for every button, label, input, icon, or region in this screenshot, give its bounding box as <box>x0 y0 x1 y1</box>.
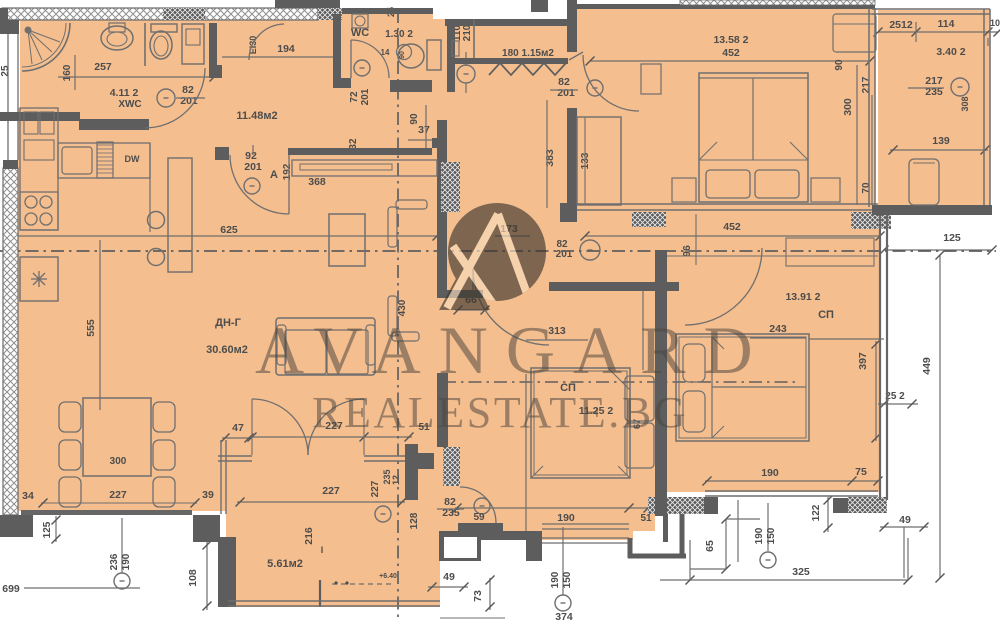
svg-text:374: 374 <box>555 611 573 623</box>
svg-text:90: 90 <box>409 113 420 125</box>
svg-text:WC: WC <box>351 27 369 39</box>
svg-text:625: 625 <box>220 224 238 236</box>
svg-text:ХWC: ХWC <box>118 99 141 110</box>
svg-text:452: 452 <box>722 47 740 59</box>
svg-text:139: 139 <box>932 135 950 147</box>
svg-text:300: 300 <box>842 98 854 116</box>
svg-text:AVANGARD: AVANGARD <box>255 312 771 388</box>
svg-text:37: 37 <box>418 124 430 136</box>
svg-text:150: 150 <box>562 571 573 588</box>
svg-text:3.40 2: 3.40 2 <box>936 46 965 58</box>
svg-text:122: 122 <box>811 504 822 521</box>
svg-text:128: 128 <box>409 512 420 529</box>
svg-text:190: 190 <box>761 467 779 479</box>
svg-text:51: 51 <box>640 513 652 524</box>
svg-text:114: 114 <box>938 18 955 30</box>
svg-text:108: 108 <box>187 569 199 587</box>
svg-text:452: 452 <box>723 221 741 233</box>
svg-text:59: 59 <box>473 512 485 523</box>
svg-text:+6.40: +6.40 <box>379 573 397 580</box>
svg-text:227: 227 <box>370 480 381 497</box>
svg-text:449: 449 <box>921 357 933 375</box>
svg-text:190: 190 <box>557 512 575 524</box>
svg-text:397: 397 <box>857 352 869 370</box>
svg-text:13.58 2: 13.58 2 <box>713 34 748 46</box>
svg-text:39: 39 <box>202 489 214 501</box>
svg-text:308: 308 <box>960 96 970 111</box>
svg-text:4.11 2: 4.11 2 <box>110 87 139 99</box>
svg-text:194: 194 <box>277 43 295 55</box>
svg-text:368: 368 <box>308 176 326 188</box>
svg-text:190: 190 <box>550 571 561 588</box>
svg-text:REALESTATE.BG: REALESTATE.BG <box>312 388 688 437</box>
svg-text:47: 47 <box>232 422 244 434</box>
svg-text:160: 160 <box>62 64 73 81</box>
svg-text:300: 300 <box>110 456 127 467</box>
svg-text:2512: 2512 <box>889 19 913 31</box>
svg-text:I: I <box>321 545 324 555</box>
svg-text:СП: СП <box>818 309 834 321</box>
svg-text:150: 150 <box>766 527 777 544</box>
svg-text:ДН-Г: ДН-Г <box>215 317 241 329</box>
svg-text:70: 70 <box>861 182 872 194</box>
svg-text:216: 216 <box>303 527 315 545</box>
svg-text:65: 65 <box>704 540 716 552</box>
svg-text:236: 236 <box>109 553 120 570</box>
svg-text:325: 325 <box>792 566 810 578</box>
svg-text:201: 201 <box>244 161 262 173</box>
svg-text:73: 73 <box>472 590 484 602</box>
svg-text:90: 90 <box>834 59 845 71</box>
svg-text:90: 90 <box>399 51 406 59</box>
svg-text:383: 383 <box>544 149 556 167</box>
svg-text:5.61м2: 5.61м2 <box>267 558 303 570</box>
svg-text:125: 125 <box>943 232 961 244</box>
svg-text:13.91 2: 13.91 2 <box>785 291 820 303</box>
svg-text:49: 49 <box>899 514 911 526</box>
svg-text:1.30 2: 1.30 2 <box>385 29 413 40</box>
svg-text:210: 210 <box>462 24 473 41</box>
svg-text:25: 25 <box>0 65 11 77</box>
svg-text:12: 12 <box>391 475 401 485</box>
svg-text:190: 190 <box>121 553 132 570</box>
svg-text:555: 555 <box>85 319 97 337</box>
svg-text:11.48м2: 11.48м2 <box>236 110 277 122</box>
svg-text:A: A <box>270 169 278 181</box>
svg-text:257: 257 <box>94 61 112 73</box>
svg-text:75: 75 <box>855 466 867 478</box>
svg-text:49: 49 <box>443 571 455 583</box>
svg-text:10: 10 <box>990 18 1000 28</box>
svg-text:217: 217 <box>861 76 872 93</box>
svg-text:32: 32 <box>348 138 359 150</box>
svg-text:699: 699 <box>2 583 20 595</box>
svg-text:34: 34 <box>22 490 34 502</box>
svg-text:227: 227 <box>322 485 340 497</box>
svg-text:227: 227 <box>109 489 127 501</box>
svg-text:201: 201 <box>360 88 371 105</box>
svg-text:25 2: 25 2 <box>885 391 905 402</box>
svg-text:190: 190 <box>754 527 765 544</box>
svg-text:72: 72 <box>349 91 360 103</box>
svg-text:30.60м2: 30.60м2 <box>206 344 248 356</box>
svg-text:201: 201 <box>557 87 575 99</box>
svg-text:180 1.15м2: 180 1.15м2 <box>502 48 554 59</box>
svg-text:243: 243 <box>769 323 787 335</box>
svg-text:DW: DW <box>125 154 140 164</box>
